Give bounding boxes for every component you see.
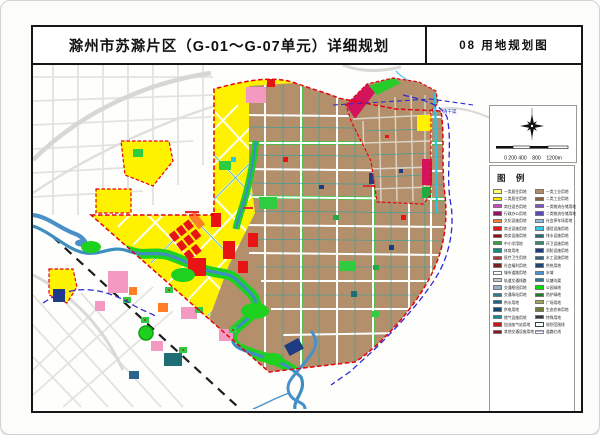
legend-swatch bbox=[535, 204, 544, 208]
legend-label: 交通场站用地 bbox=[504, 292, 527, 298]
legend-item: 交通枢纽用地 bbox=[493, 285, 533, 290]
legend-item: 轨道交通线路 bbox=[493, 278, 533, 283]
legend-item: 文化设施用地 bbox=[493, 219, 533, 224]
legend-label: 商务设施用地 bbox=[504, 233, 527, 239]
map-frame: 滁州市苏滁片区（G-01～G-07单元）详细规划 08 用地规划图 bbox=[31, 25, 583, 413]
legend-label: 一类物流仓储用地 bbox=[546, 203, 576, 209]
legend-item: 中小学用地 bbox=[493, 241, 533, 246]
legend-label: 中小学用地 bbox=[504, 240, 523, 246]
legend-label: 加油加气站用地 bbox=[504, 322, 530, 328]
legend-swatch bbox=[535, 256, 544, 260]
map-area: 清干渠 bbox=[33, 65, 581, 411]
legend-label: 社会福利用地 bbox=[504, 263, 527, 269]
legend-item: 商务设施用地 bbox=[493, 233, 533, 238]
legend-item: 交通场站用地 bbox=[493, 292, 533, 297]
legend-item: 燃气设施用地 bbox=[493, 315, 533, 320]
legend-label: 轨道交通线路 bbox=[504, 277, 527, 283]
legend-label: 社会停车场用地 bbox=[546, 218, 572, 224]
legend-item: 生态农林用地 bbox=[535, 307, 575, 312]
legend-swatch bbox=[535, 293, 544, 297]
legend-label: 供热用地 bbox=[546, 263, 561, 269]
legend-label: 供水用地 bbox=[504, 300, 519, 306]
legend-swatch bbox=[493, 248, 502, 252]
legend-column-right: 一类工业用地二类工业用地一类物流仓储用地二类物流仓储用地社会停车场用地通信设施用… bbox=[535, 189, 575, 334]
legend-swatch bbox=[493, 285, 502, 289]
legend-label: 医疗卫生用地 bbox=[504, 255, 527, 261]
legend-columns: 一类居住用地二类居住用地商住混合用地行政办公用地文化设施用地商业设施用地商务设施… bbox=[493, 189, 571, 334]
legend-label: 二类居住用地 bbox=[504, 196, 527, 202]
legend-swatch bbox=[493, 234, 502, 238]
legend-item: 加油加气站用地 bbox=[493, 322, 533, 327]
legend-swatch bbox=[493, 204, 502, 208]
north-compass bbox=[490, 106, 574, 160]
legend-item: 道路红线 bbox=[535, 329, 575, 334]
compass-scale-panel: 0 200 400 800 1200m bbox=[489, 105, 577, 163]
legend-swatch bbox=[535, 226, 544, 230]
legend-swatch bbox=[535, 211, 544, 215]
legend-swatch bbox=[493, 322, 502, 326]
legend-swatch bbox=[493, 211, 502, 215]
legend-swatch bbox=[493, 226, 502, 230]
legend-item: 公园绿地 bbox=[535, 285, 575, 290]
legend-item: 一类居住用地 bbox=[493, 189, 533, 194]
legend-item: 特殊用地 bbox=[535, 315, 575, 320]
legend-label: 广场用地 bbox=[546, 300, 561, 306]
legend-item: 供电用地 bbox=[493, 307, 533, 312]
legend-item: 坑塘沟渠 bbox=[535, 278, 575, 283]
legend-swatch bbox=[493, 189, 502, 193]
scale-label-right: 1200m bbox=[546, 156, 562, 161]
legend-item: 城市道路用地 bbox=[493, 270, 533, 275]
legend-swatch bbox=[535, 234, 544, 238]
legend-label: 水工设施用地 bbox=[546, 255, 569, 261]
legend-item: 商住混合用地 bbox=[493, 204, 533, 209]
legend-label: 生态农林用地 bbox=[546, 307, 569, 313]
legend-item: 供热用地 bbox=[535, 263, 575, 268]
legend-item: 二类居住用地 bbox=[493, 196, 533, 201]
legend-swatch bbox=[535, 197, 544, 201]
legend-label: 排水设施用地 bbox=[546, 233, 569, 239]
legend-item: 规划范围线 bbox=[535, 322, 575, 327]
legend-swatch bbox=[535, 285, 544, 289]
legend-swatch bbox=[493, 263, 502, 267]
legend-panel: 图 例 一类居住用地二类居住用地商住混合用地行政办公用地文化设施用地商业设施用地… bbox=[489, 165, 575, 411]
legend-swatch bbox=[493, 219, 502, 223]
legend-swatch bbox=[493, 197, 502, 201]
legend-item: 供水用地 bbox=[493, 300, 533, 305]
scale-label-mid: 800 bbox=[532, 156, 540, 161]
legend-label: 通信设施用地 bbox=[546, 226, 569, 232]
legend-swatch bbox=[535, 189, 544, 193]
legend-item: 商业设施用地 bbox=[493, 226, 533, 231]
legend-label: 环卫设施用地 bbox=[546, 240, 569, 246]
legend-label: 防护绿地 bbox=[546, 292, 561, 298]
legend-swatch bbox=[535, 248, 544, 252]
legend-label: 商业设施用地 bbox=[504, 226, 527, 232]
legend-item: 一类物流仓储用地 bbox=[535, 204, 575, 209]
legend-swatch bbox=[493, 330, 502, 334]
legend-label: 二类工业用地 bbox=[546, 196, 569, 202]
scale-labels: 0 200 400 800 1200m bbox=[504, 156, 562, 161]
legend-item: 广场用地 bbox=[535, 300, 575, 305]
legend-swatch bbox=[493, 307, 502, 311]
legend-item: 消防设施用地 bbox=[535, 248, 575, 253]
legend-label: 燃气设施用地 bbox=[504, 314, 527, 320]
legend-label: 一类居住用地 bbox=[504, 189, 527, 195]
legend-swatch bbox=[535, 315, 544, 319]
legend-swatch bbox=[493, 271, 502, 275]
legend-swatch bbox=[493, 315, 502, 319]
legend-label: 其他交通设施用地 bbox=[504, 329, 534, 335]
legend-item: 行政办公用地 bbox=[493, 211, 533, 216]
sheet-title: 08 用地规划图 bbox=[427, 27, 581, 63]
legend-item: 社会福利用地 bbox=[493, 263, 533, 268]
legend-swatch bbox=[493, 300, 502, 304]
legend-swatch bbox=[535, 263, 544, 267]
scale-bar bbox=[496, 146, 568, 149]
canal-label: 清干渠 bbox=[443, 108, 457, 115]
legend-label: 城市道路用地 bbox=[504, 270, 527, 276]
legend-item: 社会停车场用地 bbox=[535, 219, 575, 224]
legend-label: 行政办公用地 bbox=[504, 211, 527, 217]
legend-item: 二类工业用地 bbox=[535, 196, 575, 201]
legend-label: 坑塘沟渠 bbox=[546, 277, 561, 283]
legend-item: 二类物流仓储用地 bbox=[535, 211, 575, 216]
legend-item: 水工设施用地 bbox=[535, 256, 575, 261]
legend-item: 水域 bbox=[535, 270, 575, 275]
legend-label: 二类物流仓储用地 bbox=[546, 211, 576, 217]
legend-item: 其他交通设施用地 bbox=[493, 329, 533, 334]
legend-label: 特殊用地 bbox=[546, 314, 561, 320]
legend-swatch bbox=[535, 322, 544, 326]
legend-item: 通信设施用地 bbox=[535, 226, 575, 231]
legend-swatch bbox=[535, 330, 544, 334]
legend-swatch bbox=[493, 241, 502, 245]
legend-item: 医疗卫生用地 bbox=[493, 256, 533, 261]
legend-label: 规划范围线 bbox=[546, 322, 565, 328]
legend-label: 一类工业用地 bbox=[546, 189, 569, 195]
legend-swatch bbox=[535, 241, 544, 245]
legend-title: 图 例 bbox=[497, 172, 571, 184]
legend-label: 道路红线 bbox=[546, 329, 561, 335]
legend-label: 水域 bbox=[546, 270, 554, 276]
legend-swatch bbox=[493, 278, 502, 282]
legend-swatch bbox=[535, 271, 544, 275]
title-bar: 滁州市苏滁片区（G-01～G-07单元）详细规划 08 用地规划图 bbox=[33, 27, 581, 65]
legend-item: 排水设施用地 bbox=[535, 233, 575, 238]
legend-item: 环卫设施用地 bbox=[535, 241, 575, 246]
legend-label: 公园绿地 bbox=[546, 285, 561, 291]
legend-swatch bbox=[535, 278, 544, 282]
legend-swatch bbox=[535, 219, 544, 223]
legend-column-left: 一类居住用地二类居住用地商住混合用地行政办公用地文化设施用地商业设施用地商务设施… bbox=[493, 189, 533, 334]
legend-item: 一类工业用地 bbox=[535, 189, 575, 194]
legend-label: 供电用地 bbox=[504, 307, 519, 313]
legend-label: 文化设施用地 bbox=[504, 218, 527, 224]
page-title: 滁州市苏滁片区（G-01～G-07单元）详细规划 bbox=[33, 27, 427, 63]
legend-label: 商住混合用地 bbox=[504, 203, 527, 209]
legend-swatch bbox=[493, 256, 502, 260]
legend-item: 体育用地 bbox=[493, 248, 533, 253]
legend-item: 防护绿地 bbox=[535, 292, 575, 297]
planning-sheet-card: 滁州市苏滁片区（G-01～G-07单元）详细规划 08 用地规划图 bbox=[0, 0, 600, 435]
scale-label-left: 0 200 400 bbox=[504, 156, 527, 161]
legend-swatch bbox=[493, 293, 502, 297]
legend-swatch bbox=[535, 307, 544, 311]
legend-swatch bbox=[535, 300, 544, 304]
legend-label: 交通枢纽用地 bbox=[504, 285, 527, 291]
legend-label: 体育用地 bbox=[504, 248, 519, 254]
legend-label: 消防设施用地 bbox=[546, 248, 569, 254]
